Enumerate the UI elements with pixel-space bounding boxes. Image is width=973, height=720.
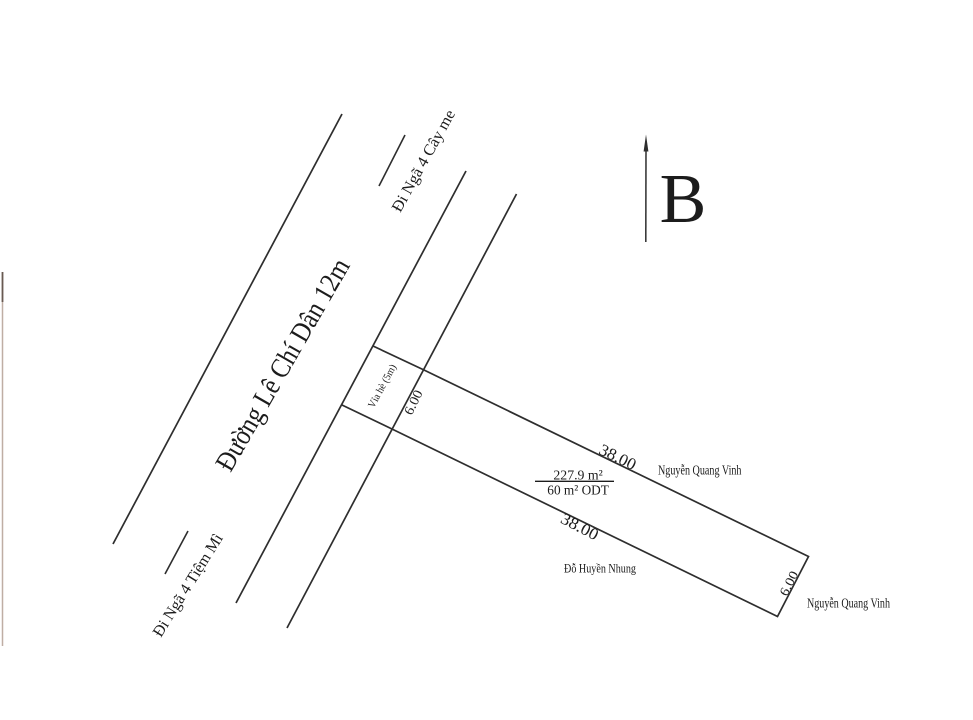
svg-text:Vỉa hè (5m): Vỉa hè (5m) [367, 362, 400, 410]
svg-text:Nguyễn Quang Vinh: Nguyễn Quang Vinh [807, 596, 890, 611]
svg-text:6.00: 6.00 [776, 568, 801, 598]
svg-text:Đi Ngã 4 Tiệm Mì: Đi Ngã 4 Tiệm Mì [150, 531, 227, 641]
svg-text:Đi Ngã 4 Cây me: Đi Ngã 4 Cây me [389, 107, 459, 215]
svg-text:Đường Lê Chí Dân 12m: Đường Lê Chí Dân 12m [210, 253, 357, 477]
svg-text:38.00: 38.00 [558, 509, 602, 544]
svg-text:6.00: 6.00 [401, 387, 426, 417]
svg-text:60 m² ODT: 60 m² ODT [547, 484, 609, 499]
svg-text:B: B [660, 161, 707, 238]
svg-text:Đỗ Huyền Nhung: Đỗ Huyền Nhung [564, 561, 636, 576]
svg-text:Nguyễn Quang Vinh: Nguyễn Quang Vinh [658, 463, 742, 478]
